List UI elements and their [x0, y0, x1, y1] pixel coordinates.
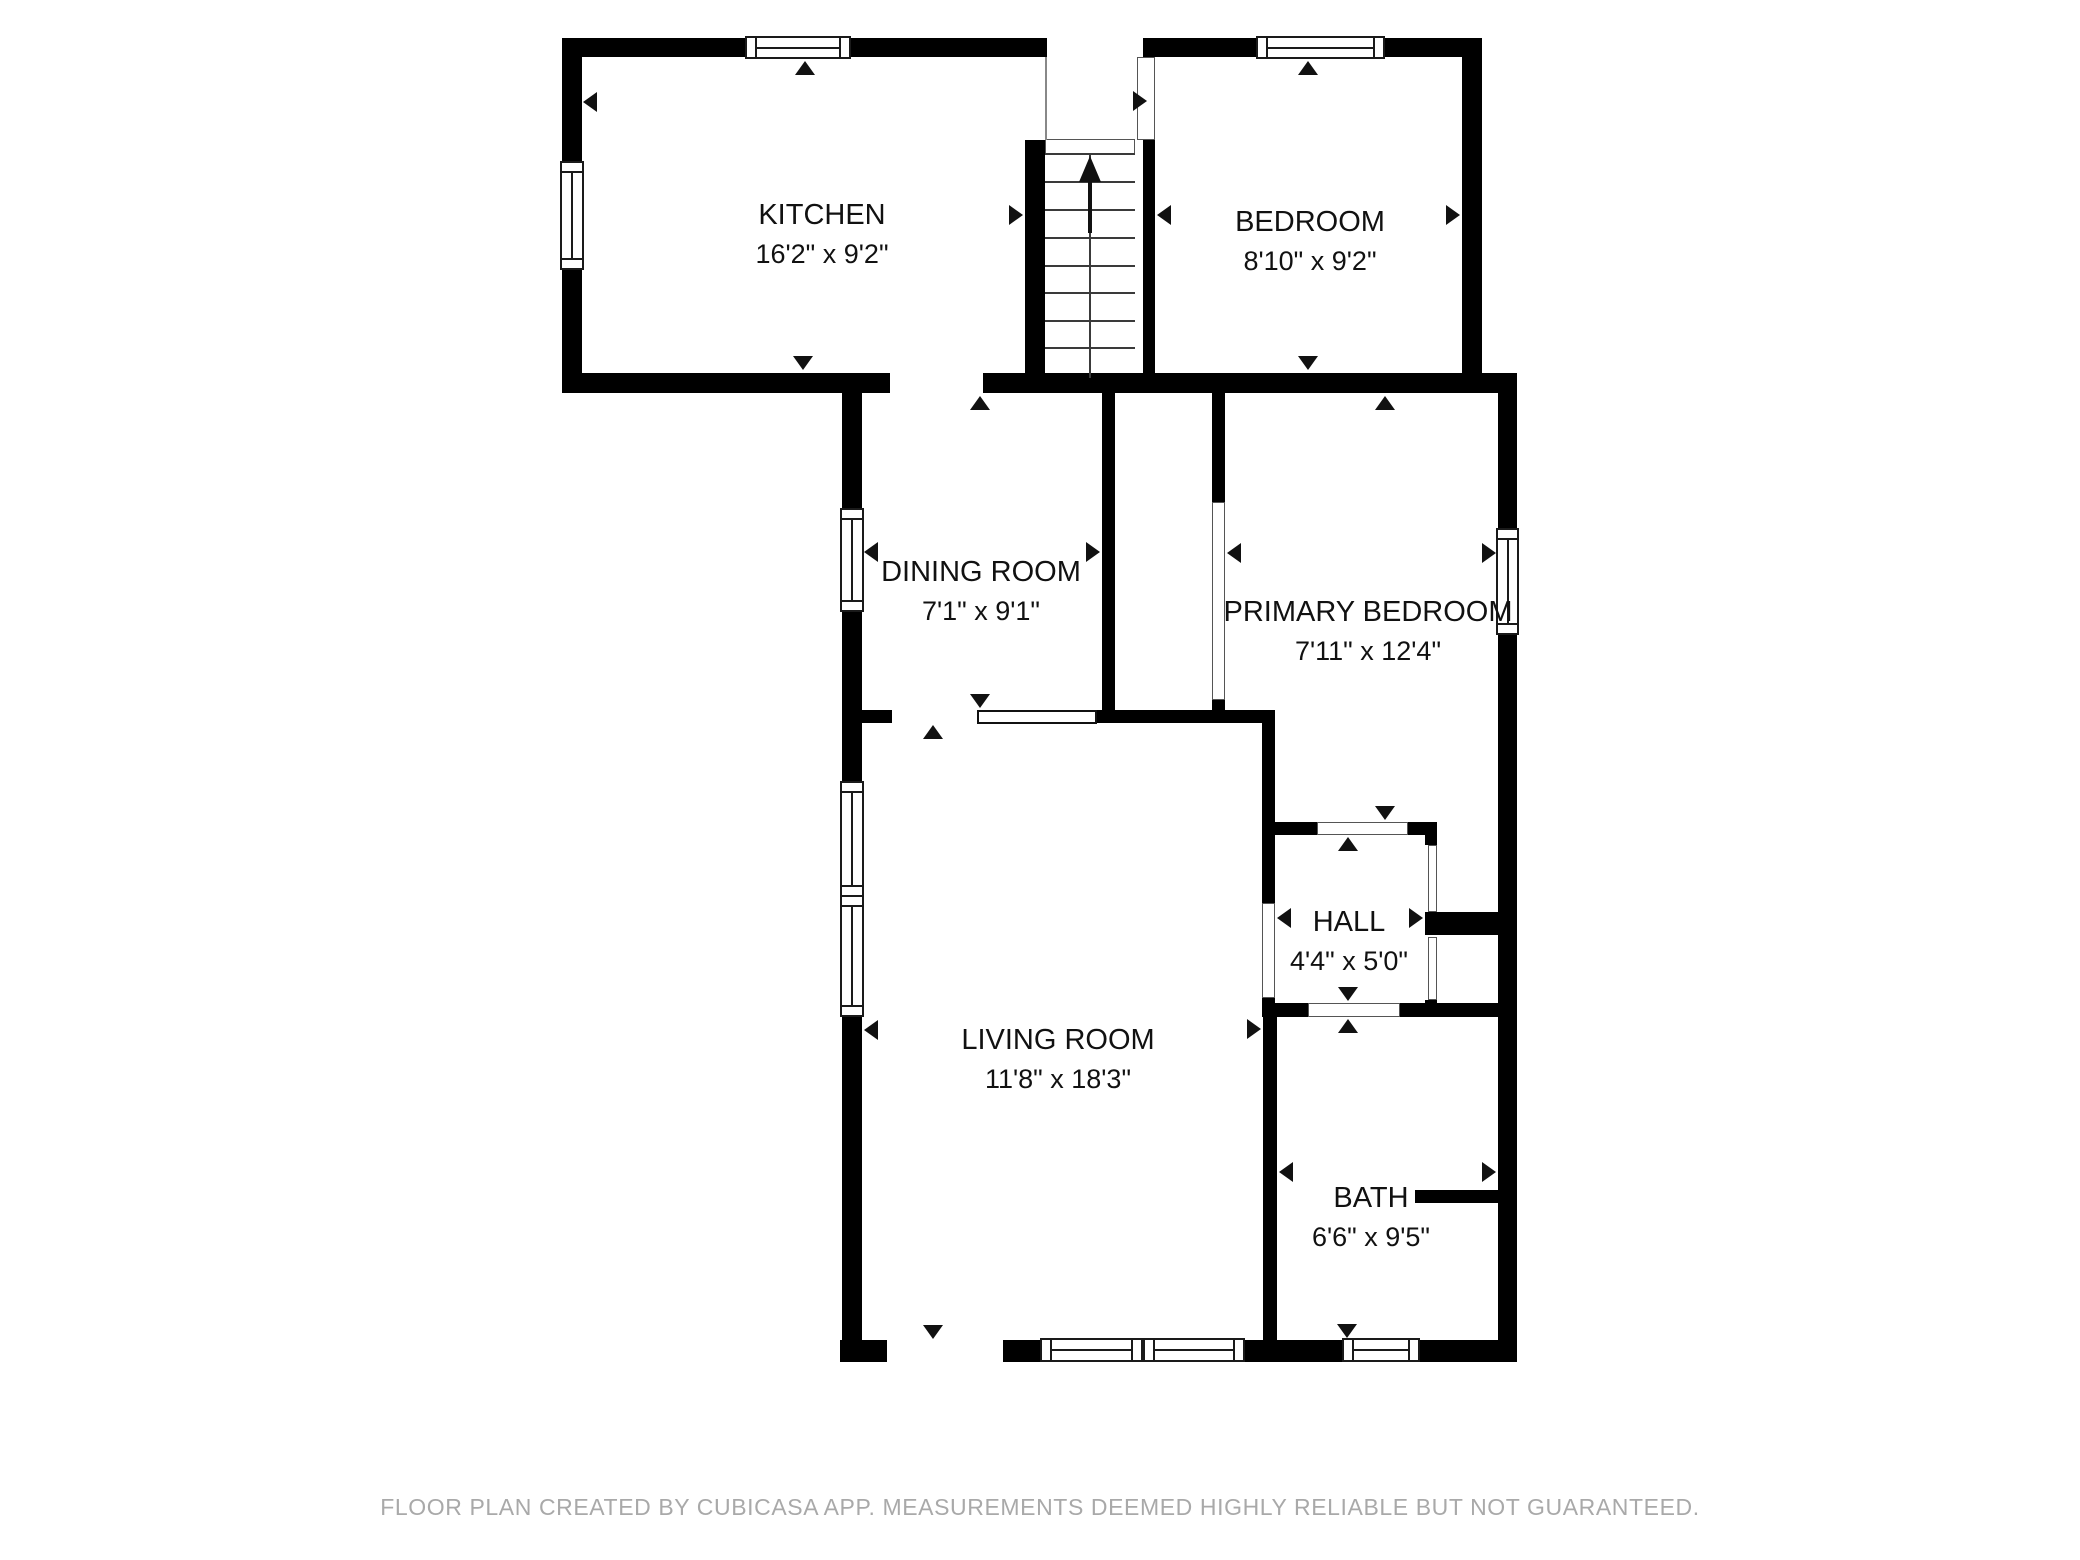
direction-arrow-icon — [1338, 1019, 1358, 1033]
direction-arrow-icon — [1337, 1324, 1357, 1338]
window-frame — [1052, 1349, 1131, 1351]
stair-up-arrow-icon — [1079, 156, 1101, 182]
wall — [1003, 1340, 1040, 1362]
window-frame — [851, 793, 853, 885]
direction-arrow-icon — [1338, 837, 1358, 851]
wall — [840, 1340, 887, 1362]
window-frame — [842, 1005, 862, 1007]
room-label-hall: HALL4'4" x 5'0" — [1069, 902, 1629, 980]
room-label-kitchen: KITCHEN16'2" x 9'2" — [542, 195, 1102, 273]
room-name-dining-room: DINING ROOM — [701, 552, 1261, 592]
direction-arrow-icon — [970, 694, 990, 708]
window-frame — [1268, 47, 1373, 49]
entry-door-opening — [1045, 139, 1135, 154]
room-label-bedroom: BEDROOM8'10" x 9'2" — [1030, 202, 1590, 280]
bedroom-top-window — [1256, 36, 1385, 59]
direction-arrow-icon — [795, 61, 815, 75]
wall — [1097, 710, 1275, 723]
wall — [1262, 723, 1275, 903]
wall — [1400, 1003, 1498, 1017]
direction-arrow-icon — [1375, 806, 1395, 820]
direction-arrow-icon — [1298, 356, 1318, 370]
room-label-primary-bedroom: PRIMARY BEDROOM7'11" x 12'4" — [1088, 592, 1648, 670]
wall — [1425, 833, 1437, 845]
window-frame — [1373, 38, 1375, 57]
window-frame — [851, 907, 853, 1005]
room-name-bath: BATH — [1091, 1178, 1651, 1218]
window-frame — [839, 38, 841, 57]
direction-arrow-icon — [923, 725, 943, 739]
wall — [842, 393, 862, 510]
kitchen-top-window — [745, 36, 851, 59]
living-room-bottom-window-1 — [1040, 1338, 1143, 1362]
living-room-bottom-window-2 — [1143, 1338, 1245, 1362]
wall — [1262, 1003, 1308, 1017]
room-dimensions-primary-bedroom: 7'11" x 12'4" — [1088, 632, 1648, 670]
window-frame — [842, 885, 862, 887]
room-name-primary-bedroom: PRIMARY BEDROOM — [1088, 592, 1648, 632]
footer-disclaimer: FLOOR PLAN CREATED BY CUBICASA APP. MEAS… — [0, 1494, 2080, 1521]
room-dimensions-living-room: 11'8" x 18'3" — [778, 1060, 1338, 1098]
direction-arrow-icon — [1375, 396, 1395, 410]
direction-arrow-icon — [1482, 543, 1496, 563]
direction-arrow-icon — [923, 1325, 943, 1339]
direction-arrow-icon — [1338, 987, 1358, 1001]
room-name-living-room: LIVING ROOM — [778, 1020, 1338, 1060]
room-dimensions-bedroom: 8'10" x 9'2" — [1030, 242, 1590, 280]
wall — [1212, 393, 1225, 502]
direction-arrow-icon — [583, 92, 597, 112]
wall — [562, 38, 582, 163]
window-frame — [1155, 1349, 1233, 1351]
window-frame — [1131, 1340, 1133, 1360]
wall — [851, 38, 1047, 57]
wall — [562, 373, 890, 393]
window-frame — [757, 47, 839, 49]
room-label-bath: BATH6'6" x 9'5" — [1091, 1178, 1651, 1256]
room-label-living-room: LIVING ROOM11'8" x 18'3" — [778, 1020, 1338, 1098]
room-dimensions-hall: 4'4" x 5'0" — [1069, 942, 1629, 980]
dining-door-leaf — [977, 710, 1097, 724]
room-name-bedroom: BEDROOM — [1030, 202, 1590, 242]
direction-arrow-icon — [970, 396, 990, 410]
room-dimensions-kitchen: 16'2" x 9'2" — [542, 235, 1102, 273]
room-dimensions-bath: 6'6" x 9'5" — [1091, 1218, 1651, 1256]
room-name-hall: HALL — [1069, 902, 1629, 942]
window-frame — [1408, 1340, 1410, 1360]
hall-north-door-opening — [1317, 822, 1408, 835]
floor-plan: FLOOR PLAN CREATED BY CUBICASA APP. MEAS… — [0, 0, 2080, 1560]
living-room-left-window-2 — [840, 895, 864, 1017]
direction-arrow-icon — [793, 356, 813, 370]
wall — [1275, 822, 1317, 835]
wall — [1420, 1340, 1517, 1362]
living-room-left-window-1 — [840, 781, 864, 897]
partition-line — [1045, 57, 1047, 140]
direction-arrow-icon — [1133, 91, 1147, 111]
window-frame — [1354, 1349, 1408, 1351]
window-frame — [1233, 1340, 1235, 1360]
wall — [1143, 38, 1260, 57]
wall — [842, 710, 892, 723]
wall — [1498, 373, 1517, 530]
wall — [1245, 1340, 1342, 1362]
hall-south-door-opening — [1308, 1003, 1400, 1017]
wall — [842, 723, 862, 783]
wall — [562, 38, 747, 57]
room-name-kitchen: KITCHEN — [542, 195, 1102, 235]
bath-window — [1342, 1338, 1420, 1362]
direction-arrow-icon — [1298, 61, 1318, 75]
